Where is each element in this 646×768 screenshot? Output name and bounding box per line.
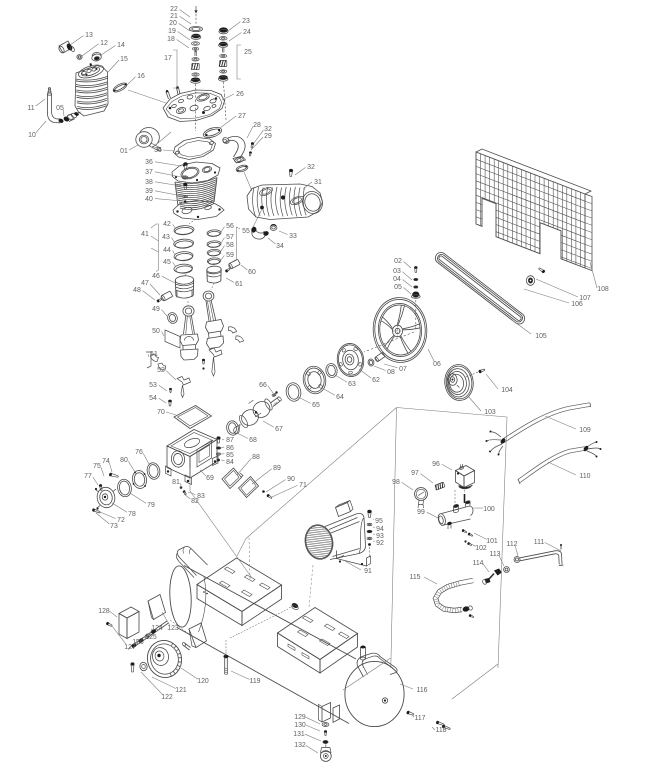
svg-text:33: 33 <box>289 233 297 240</box>
svg-text:45: 45 <box>163 259 171 266</box>
svg-text:18: 18 <box>167 36 175 43</box>
svg-text:50: 50 <box>152 328 160 335</box>
svg-text:92: 92 <box>376 540 384 547</box>
svg-text:48: 48 <box>133 287 141 294</box>
svg-text:10: 10 <box>28 132 36 139</box>
svg-text:21: 21 <box>170 13 178 20</box>
svg-text:118: 118 <box>436 727 447 734</box>
svg-text:36: 36 <box>145 159 153 166</box>
svg-text:28: 28 <box>253 122 261 129</box>
svg-text:129: 129 <box>294 714 306 721</box>
svg-text:106: 106 <box>571 301 583 308</box>
svg-text:132: 132 <box>294 742 306 749</box>
svg-text:71: 71 <box>299 482 307 489</box>
svg-text:113: 113 <box>490 551 501 558</box>
svg-text:81: 81 <box>172 479 180 486</box>
svg-text:27: 27 <box>238 113 246 120</box>
svg-text:69: 69 <box>206 475 214 482</box>
svg-text:62: 62 <box>372 377 380 384</box>
svg-text:05: 05 <box>394 284 402 291</box>
svg-text:02: 02 <box>394 258 402 265</box>
svg-text:127: 127 <box>124 644 136 651</box>
svg-text:55: 55 <box>242 228 250 235</box>
svg-text:95: 95 <box>375 518 383 525</box>
svg-text:64: 64 <box>336 394 344 401</box>
svg-text:15: 15 <box>120 56 128 63</box>
svg-text:88: 88 <box>252 454 260 461</box>
svg-text:120: 120 <box>197 678 209 685</box>
svg-text:47: 47 <box>141 280 149 287</box>
svg-text:119: 119 <box>250 678 261 685</box>
svg-text:84: 84 <box>226 459 234 466</box>
svg-text:24: 24 <box>243 29 251 36</box>
svg-text:41: 41 <box>141 231 149 238</box>
svg-text:94: 94 <box>376 526 384 533</box>
svg-text:05: 05 <box>56 105 64 112</box>
svg-text:117: 117 <box>415 715 426 722</box>
svg-text:03: 03 <box>393 268 401 275</box>
svg-text:42: 42 <box>163 221 171 228</box>
svg-text:125: 125 <box>145 634 157 641</box>
svg-text:06: 06 <box>433 361 441 368</box>
svg-text:49: 49 <box>152 306 160 313</box>
svg-text:112: 112 <box>507 541 518 548</box>
svg-text:123: 123 <box>167 625 179 632</box>
svg-text:40: 40 <box>145 196 153 203</box>
svg-text:52: 52 <box>157 367 165 374</box>
svg-text:110: 110 <box>580 473 591 480</box>
svg-text:109: 109 <box>579 427 591 434</box>
svg-text:115: 115 <box>410 574 421 581</box>
svg-text:131: 131 <box>293 731 305 738</box>
svg-text:14: 14 <box>117 42 125 49</box>
svg-text:105: 105 <box>535 333 547 340</box>
svg-text:51: 51 <box>150 351 158 358</box>
svg-text:26: 26 <box>236 91 244 98</box>
svg-text:23: 23 <box>242 18 250 25</box>
svg-text:60: 60 <box>248 269 256 276</box>
svg-text:54: 54 <box>149 395 157 402</box>
svg-text:76: 76 <box>135 449 143 456</box>
svg-text:102: 102 <box>475 545 487 552</box>
svg-text:99: 99 <box>417 509 425 516</box>
svg-text:43: 43 <box>162 234 170 241</box>
svg-text:46: 46 <box>152 273 160 280</box>
svg-text:122: 122 <box>161 694 173 701</box>
svg-text:16: 16 <box>137 73 145 80</box>
svg-text:29: 29 <box>264 133 272 140</box>
svg-text:56: 56 <box>226 223 234 230</box>
svg-text:90: 90 <box>287 476 295 483</box>
svg-text:93: 93 <box>376 533 384 540</box>
svg-text:79: 79 <box>147 502 155 509</box>
svg-text:114: 114 <box>473 560 484 567</box>
svg-text:57: 57 <box>226 234 234 241</box>
svg-text:58: 58 <box>226 242 234 249</box>
svg-text:97: 97 <box>411 470 419 477</box>
svg-text:73: 73 <box>110 523 118 530</box>
svg-text:44: 44 <box>163 247 171 254</box>
svg-text:100: 100 <box>483 506 495 513</box>
svg-text:130: 130 <box>294 722 306 729</box>
svg-text:31: 31 <box>314 179 322 186</box>
svg-text:111: 111 <box>534 539 545 546</box>
svg-text:17: 17 <box>164 55 172 62</box>
svg-text:32: 32 <box>307 164 315 171</box>
svg-text:34: 34 <box>276 243 284 250</box>
svg-text:78: 78 <box>128 511 136 518</box>
svg-text:61: 61 <box>235 281 243 288</box>
svg-text:11: 11 <box>27 105 34 112</box>
svg-text:70: 70 <box>157 409 165 416</box>
svg-text:65: 65 <box>312 402 320 409</box>
svg-text:07: 07 <box>399 366 407 373</box>
svg-text:91: 91 <box>364 568 372 575</box>
svg-text:25: 25 <box>244 49 252 56</box>
svg-text:66: 66 <box>259 382 267 389</box>
svg-text:75: 75 <box>93 463 101 470</box>
svg-text:19: 19 <box>168 28 176 35</box>
svg-text:53: 53 <box>149 382 157 389</box>
svg-text:38: 38 <box>145 179 153 186</box>
svg-text:32: 32 <box>264 126 272 133</box>
svg-text:96: 96 <box>432 461 440 468</box>
svg-text:82: 82 <box>191 498 199 505</box>
svg-text:59: 59 <box>226 252 234 259</box>
svg-text:72: 72 <box>117 517 125 524</box>
svg-text:86: 86 <box>226 445 234 452</box>
svg-text:98: 98 <box>392 479 400 486</box>
svg-text:124: 124 <box>151 625 163 632</box>
svg-text:67: 67 <box>275 426 283 433</box>
svg-text:39: 39 <box>145 188 153 195</box>
svg-text:37: 37 <box>145 169 153 176</box>
svg-text:128: 128 <box>98 608 110 615</box>
svg-text:01: 01 <box>120 148 128 155</box>
svg-text:08: 08 <box>387 369 395 376</box>
svg-text:12: 12 <box>100 40 108 47</box>
svg-text:104: 104 <box>501 387 513 394</box>
svg-text:35: 35 <box>154 147 162 154</box>
svg-text:101: 101 <box>486 538 498 545</box>
svg-text:89: 89 <box>273 465 281 472</box>
svg-text:20: 20 <box>169 20 177 27</box>
svg-text:22: 22 <box>170 6 178 13</box>
svg-text:04: 04 <box>393 276 401 283</box>
svg-text:116: 116 <box>417 687 428 694</box>
svg-text:63: 63 <box>348 381 356 388</box>
svg-text:87: 87 <box>226 437 234 444</box>
svg-text:13: 13 <box>85 32 93 39</box>
svg-text:80: 80 <box>120 457 128 464</box>
svg-text:68: 68 <box>249 437 257 444</box>
svg-text:85: 85 <box>226 452 234 459</box>
svg-text:121: 121 <box>175 687 187 694</box>
svg-text:74: 74 <box>102 458 110 465</box>
svg-text:108: 108 <box>597 286 609 293</box>
svg-text:77: 77 <box>84 473 92 480</box>
